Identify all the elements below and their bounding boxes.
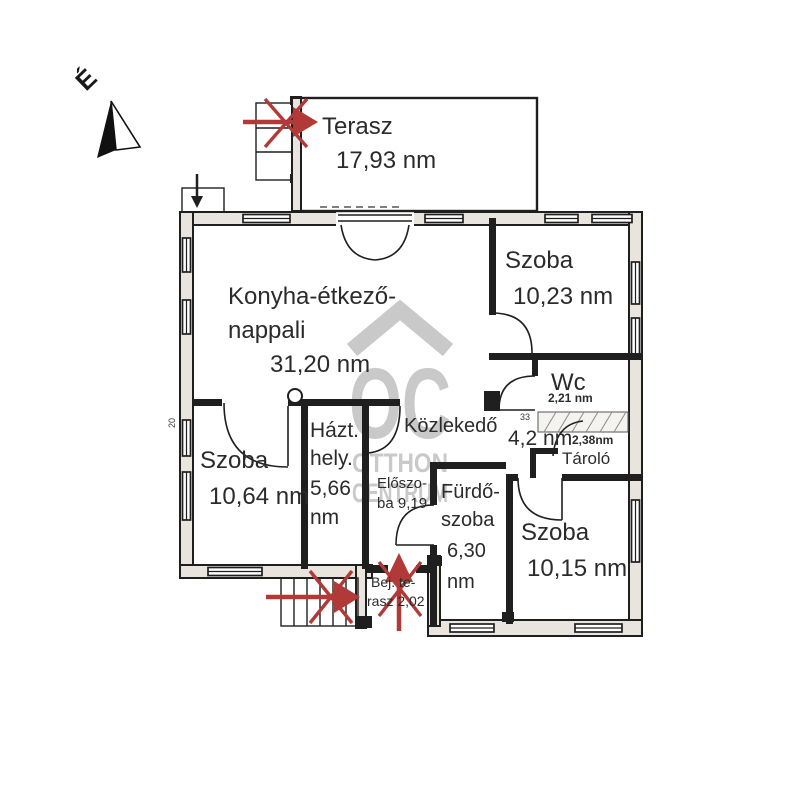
window-icon — [545, 215, 578, 223]
room-label-terasz: Terasz — [322, 114, 393, 139]
watermark-roof-icon — [352, 310, 448, 350]
room-label-eloszoba-line1: Előszo- — [377, 476, 427, 492]
room-label-eloszoba-line2: ba 9,19 — [377, 496, 427, 512]
pillar — [484, 391, 500, 411]
room-area-szoba-nyugati: 10,64 nm — [209, 484, 309, 509]
floorplan-page: OC OTTHON CENTRUM — [0, 0, 800, 785]
room-label-haztartasi-line2: hely. — [310, 448, 353, 470]
room-area-kozlekedo: 4,2 nm — [508, 428, 572, 450]
arrow-head-icon — [293, 107, 318, 137]
room-area-haztartasi-line4: nm — [310, 507, 339, 529]
window-icon — [183, 238, 191, 272]
entrance-arrow-terrace — [243, 99, 318, 147]
room-area-haztartasi-line3: 5,66 — [310, 478, 351, 500]
door-arc-icon — [499, 376, 535, 410]
floorplan-drawing: OC OTTHON CENTRUM — [0, 0, 800, 785]
window-icon — [450, 624, 494, 632]
north-arrow: É — [69, 63, 140, 158]
room-area-wc: 2,21 nm — [548, 392, 593, 405]
room-area-konyha: 31,20 nm — [270, 352, 370, 377]
door-arc-icon — [518, 478, 562, 520]
window-icon — [208, 568, 262, 576]
room-label-kozlekedo: Közlekedő — [404, 416, 497, 437]
north-label: É — [69, 63, 102, 97]
room-area-furdoszoba-line3: 6,30 — [447, 541, 486, 562]
window-icon — [592, 215, 632, 223]
window-icon — [425, 215, 463, 223]
door-arc-icon — [492, 313, 532, 353]
entrance-arrow-front-door — [379, 553, 421, 631]
room-label-tarolo: Tároló — [562, 450, 610, 468]
room-label-konyha-line1: Konyha-étkező- — [228, 284, 396, 309]
terrace-door-opening — [336, 210, 414, 227]
room-area-tarolo: 2,38nm — [572, 434, 613, 447]
window-icon — [183, 300, 191, 334]
room-label-konyha-line2: nappali — [228, 318, 305, 343]
window-icon — [183, 472, 191, 520]
room-label-furdoszoba-line1: Fürdő- — [441, 482, 500, 503]
room-area-terasz: 17,93 nm — [336, 148, 436, 173]
dimension-label-left-wall: 20 — [168, 418, 177, 428]
room-label-bejarati-terasz-line2: rasz 2,02 — [367, 594, 425, 609]
window-icon — [632, 262, 640, 304]
french-door-right-icon — [375, 225, 409, 260]
room-area-szoba-eszaki: 10,23 nm — [513, 284, 613, 309]
room-label-haztartasi-line1: Házt. — [310, 420, 359, 442]
window-icon — [243, 215, 290, 223]
dimension-label-wc-wall: 33 — [520, 413, 530, 422]
window-icon — [183, 420, 191, 456]
column-symbol — [288, 389, 302, 403]
room-area-furdoszoba-line4: nm — [447, 572, 475, 593]
room-area-szoba-deli: 10,15 nm — [527, 556, 627, 581]
window-icon — [632, 500, 640, 562]
room-label-bejarati-terasz-line1: Bej. te- — [371, 575, 415, 590]
room-label-szoba-deli: Szoba — [521, 520, 589, 545]
room-label-furdoszoba-line2: szoba — [441, 510, 494, 531]
down-arrow-icon — [191, 196, 203, 208]
room-label-szoba-eszaki: Szoba — [505, 248, 573, 273]
french-door-left-icon — [341, 225, 375, 260]
window-icon — [632, 318, 640, 358]
window-icon — [575, 624, 622, 632]
terrace-steps — [256, 103, 292, 180]
room-label-szoba-nyugati: Szoba — [200, 448, 268, 473]
chimney-projection — [182, 174, 224, 212]
